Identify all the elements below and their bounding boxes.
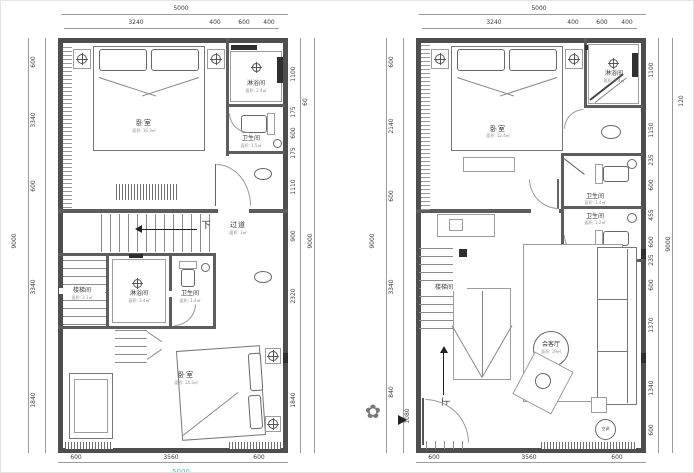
dim-line-top-segments xyxy=(422,28,637,29)
dim-line-left-outer xyxy=(386,38,387,453)
ac-label: 空调 xyxy=(595,427,616,431)
dim-label: 600 xyxy=(649,168,655,202)
vanity xyxy=(437,214,495,237)
arrow-up-icon xyxy=(440,342,448,353)
dim-label: 3560 xyxy=(499,455,559,461)
dim-label: 2140 xyxy=(389,109,395,143)
dim-label: 1150 xyxy=(649,113,655,147)
room-label: 卧室 xyxy=(473,126,523,133)
pillow xyxy=(457,49,505,71)
dim-line-right-outer xyxy=(672,38,673,453)
sofa-back-line xyxy=(627,249,628,403)
door-sill-stripes xyxy=(426,441,470,449)
wall-block xyxy=(641,249,646,259)
dim-label: 3240 xyxy=(464,20,524,26)
wall-inner xyxy=(584,105,643,108)
dim-label: 600 xyxy=(649,268,655,302)
basin xyxy=(601,125,621,139)
dim-label: 5000 xyxy=(509,6,569,12)
dim-label: 1100 xyxy=(649,53,655,87)
vanity-basin xyxy=(449,219,463,231)
wall-inner xyxy=(561,153,643,156)
lamp-icon xyxy=(569,54,579,64)
wardrobe xyxy=(421,45,430,210)
wall-top xyxy=(416,38,646,43)
dim-label: 3340 xyxy=(389,270,395,304)
room-label: 淋浴间 xyxy=(589,71,639,77)
pillow xyxy=(509,49,557,71)
door-arc xyxy=(564,109,584,129)
dim-label: 400 xyxy=(563,20,583,26)
dim-label: 600 xyxy=(602,455,632,461)
toilet-bowl xyxy=(603,166,629,182)
dim-label: 400 xyxy=(617,20,637,26)
shower-drain-icon xyxy=(609,59,618,68)
door-arc xyxy=(529,179,559,209)
dim-label: 1340 xyxy=(649,371,655,405)
accessory xyxy=(627,213,637,223)
stair-string xyxy=(482,291,483,377)
toilet-tank xyxy=(595,164,603,184)
plant-icon: ✿ xyxy=(365,403,381,422)
room-area: 面积: 1.4㎡ xyxy=(573,201,617,205)
door-leaf xyxy=(422,398,424,445)
room-area: 面积: 2.4㎡ xyxy=(589,79,639,83)
wall-inner xyxy=(561,206,643,209)
dim-label: 840 xyxy=(389,375,395,409)
up-arrow-line xyxy=(443,349,444,395)
dim-label: 600 xyxy=(649,413,655,447)
accessory xyxy=(627,159,637,169)
entry-arrow-icon xyxy=(398,415,412,425)
lamp-icon xyxy=(435,54,445,64)
dim-label: 1370 xyxy=(649,308,655,342)
dim-label: 600 xyxy=(389,45,395,79)
door-arc xyxy=(425,399,469,443)
room-area: 面积: 12.4㎡ xyxy=(473,134,523,138)
sofa-divider xyxy=(598,299,628,300)
room-label: 楼梯间 xyxy=(421,285,467,291)
dim-label: 600 xyxy=(419,455,449,461)
floor-plan-drawing: 5000 3240 400 600 400 9000 600 3340 600 … xyxy=(0,0,694,473)
room-label: 会客厅 xyxy=(533,342,569,348)
wall-right xyxy=(641,38,646,453)
side-table xyxy=(591,397,607,413)
stair-post xyxy=(459,249,467,257)
door-leaf xyxy=(564,158,585,175)
sofa xyxy=(597,247,637,405)
sofa-divider xyxy=(598,351,628,352)
dim-label: 600 xyxy=(588,20,616,26)
dim-line-top-total xyxy=(419,14,646,15)
floor-plan-lower: 5000 3240 400 600 400 9000 600 2140 600 … xyxy=(1,1,694,473)
dim-label: 9000 xyxy=(666,227,672,261)
dim-line-bottom xyxy=(416,462,646,463)
dresser xyxy=(463,157,515,172)
dim-line-left-inner xyxy=(403,38,404,453)
dim-label: 9000 xyxy=(370,224,376,258)
room-area: 面积: 1.2㎡ xyxy=(573,221,617,225)
dim-label: 600 xyxy=(389,179,395,213)
wall-block xyxy=(641,353,646,363)
wall-inner xyxy=(416,209,531,213)
window-hatch xyxy=(541,442,636,449)
dim-label: 120 xyxy=(679,84,685,118)
dim-line-right-inner xyxy=(658,38,659,453)
